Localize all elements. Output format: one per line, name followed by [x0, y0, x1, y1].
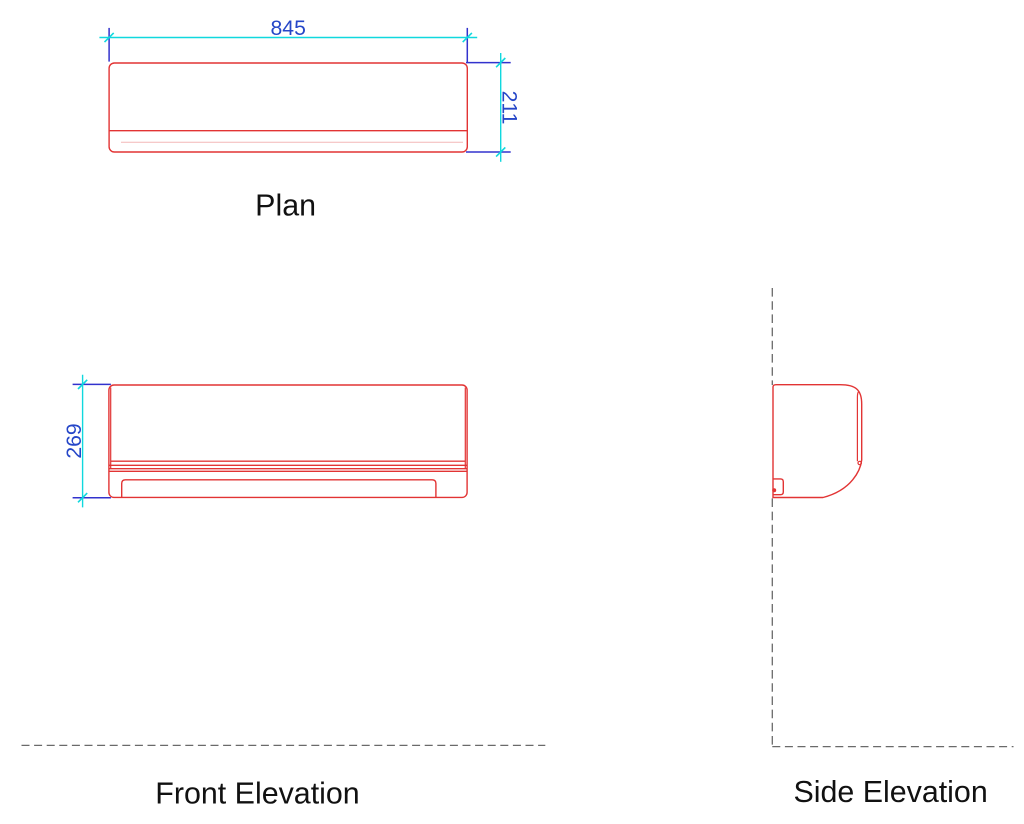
- svg-text:Plan: Plan: [255, 189, 316, 223]
- svg-text:Front Elevation: Front Elevation: [155, 777, 359, 811]
- svg-text:269: 269: [63, 423, 86, 458]
- svg-text:211: 211: [497, 91, 520, 125]
- svg-text:845: 845: [271, 17, 306, 40]
- svg-text:Side Elevation: Side Elevation: [793, 775, 987, 809]
